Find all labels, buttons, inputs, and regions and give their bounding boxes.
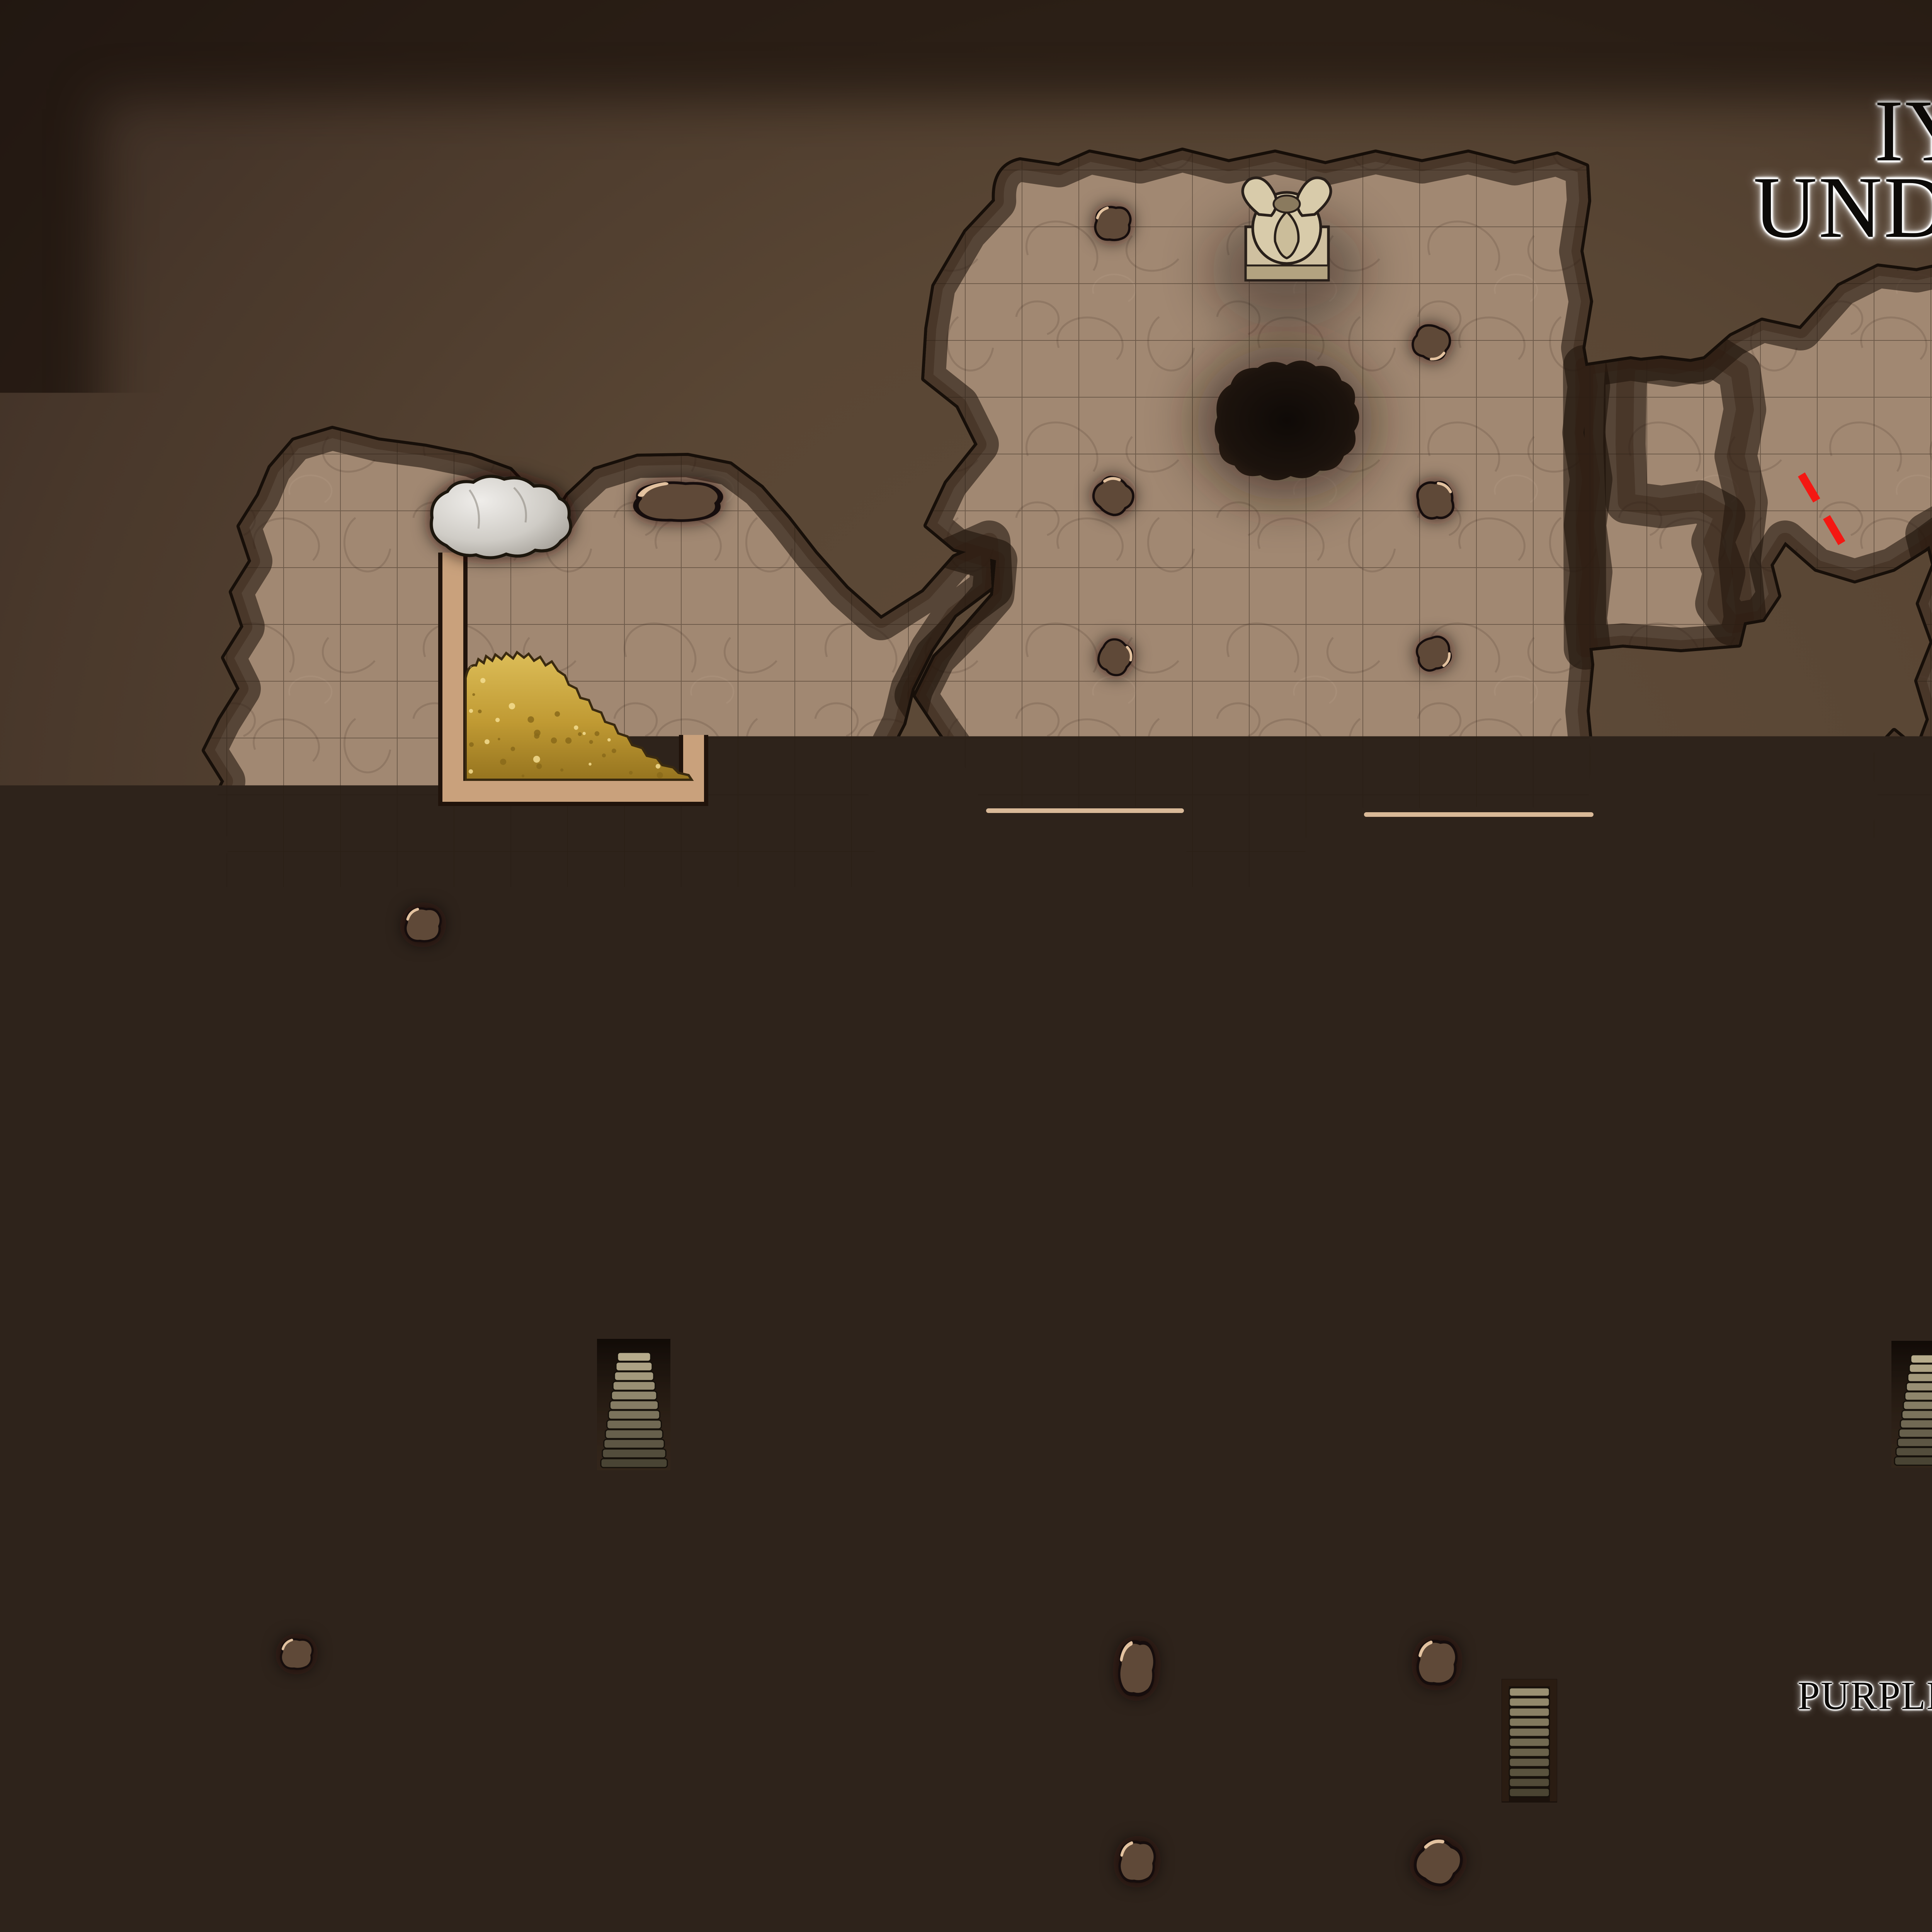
legend-label: COLLAPSIBLE PASSAGE [1798,1735,1932,1781]
sinkhole-swatch-icon [1782,1603,1844,1665]
stairs-to-above-left [597,1339,670,1470]
stairs-to-above-right [1891,1341,1932,1468]
map-title-line2: UNDERGROUND [1747,169,1932,246]
legend-label: SINKHOLE [1798,1796,1932,1842]
legend-label: PURPLE WORMLINGS [1798,1673,1932,1719]
map-title-line1: IYMRITH'S [1747,93,1932,169]
white-boulder [431,476,571,558]
to-above-label-left: TO ABOVE [468,1311,586,1365]
map-canvas [0,0,1932,1932]
map-title: IYMRITH'S UNDERGROUND [1747,93,1932,246]
dungeon-map: IYMRITH'S UNDERGROUND TO ABOVE TO ABOVE … [0,0,1932,1932]
ladder [1502,1679,1557,1803]
dark-pit [1196,346,1374,500]
